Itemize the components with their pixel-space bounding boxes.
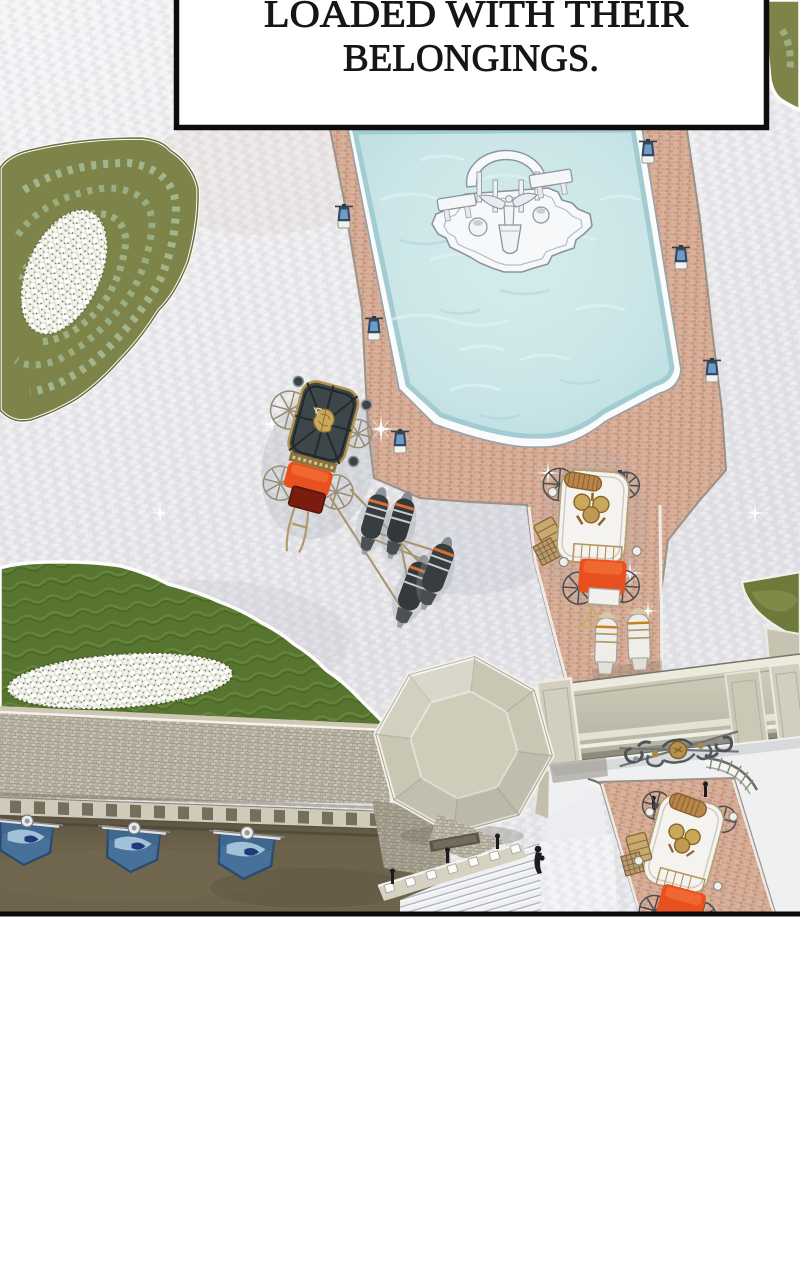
svg-text:LOADED WITH THEIR: LOADED WITH THEIR — [264, 0, 688, 36]
svg-text:BELONGINGS.: BELONGINGS. — [343, 38, 599, 80]
